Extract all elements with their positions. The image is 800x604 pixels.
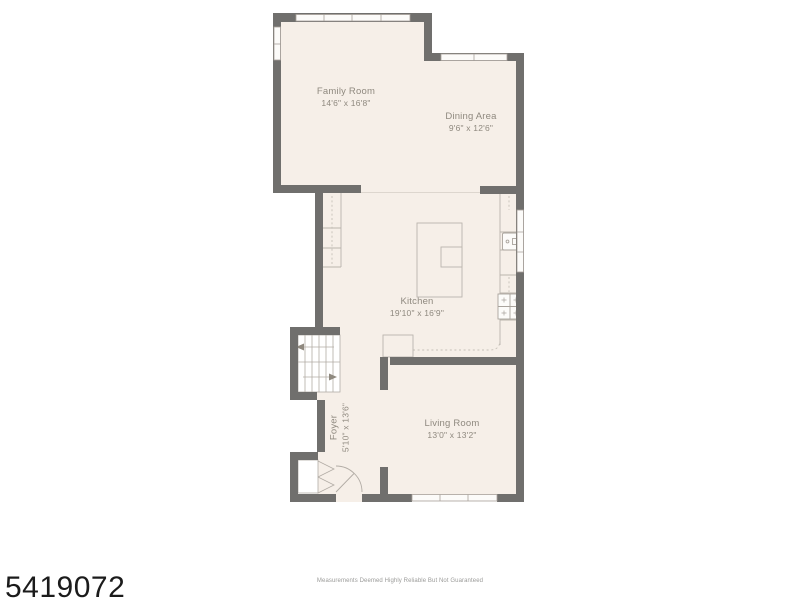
window-dining-top — [441, 54, 507, 61]
wall-dining-right — [516, 53, 524, 194]
floorplan-canvas: Family Room 14'6" x 16'8" Dining Area 9'… — [0, 0, 800, 600]
floor-living-room — [384, 361, 520, 498]
wall-bottom-left — [290, 494, 336, 502]
wall-living-right — [516, 365, 524, 502]
floor-entry-threshold — [336, 494, 362, 502]
closet-box — [298, 460, 318, 493]
wall-stairs-bottom — [290, 392, 317, 400]
floor-family-room — [277, 17, 428, 189]
staircase — [296, 335, 340, 392]
wall-kitchen-left — [315, 185, 323, 327]
window-pane — [274, 27, 281, 60]
wall-living-top — [390, 357, 524, 365]
floor-fills — [277, 17, 520, 502]
wall-living-left-upper — [380, 357, 388, 390]
wall-dining-bottom — [480, 186, 524, 194]
window-pane — [517, 210, 524, 272]
wall-living-left-lower — [380, 467, 388, 502]
window-living-bottom — [412, 495, 497, 502]
window-family-top — [296, 15, 410, 22]
kitchen-island-extension — [441, 247, 462, 267]
floorplan-svg — [0, 0, 800, 600]
window-family-left — [274, 27, 281, 60]
window-pane — [412, 495, 497, 502]
window-pane — [296, 15, 410, 22]
wall-foyer-left — [317, 400, 325, 452]
window-kitchen-right — [517, 210, 524, 272]
wall-stairs-left — [290, 327, 298, 400]
disclaimer-text: Measurements Deemed Highly Reliable But … — [250, 578, 550, 584]
listing-number: 5419072 — [5, 573, 125, 603]
floor-dining-area — [428, 57, 520, 190]
